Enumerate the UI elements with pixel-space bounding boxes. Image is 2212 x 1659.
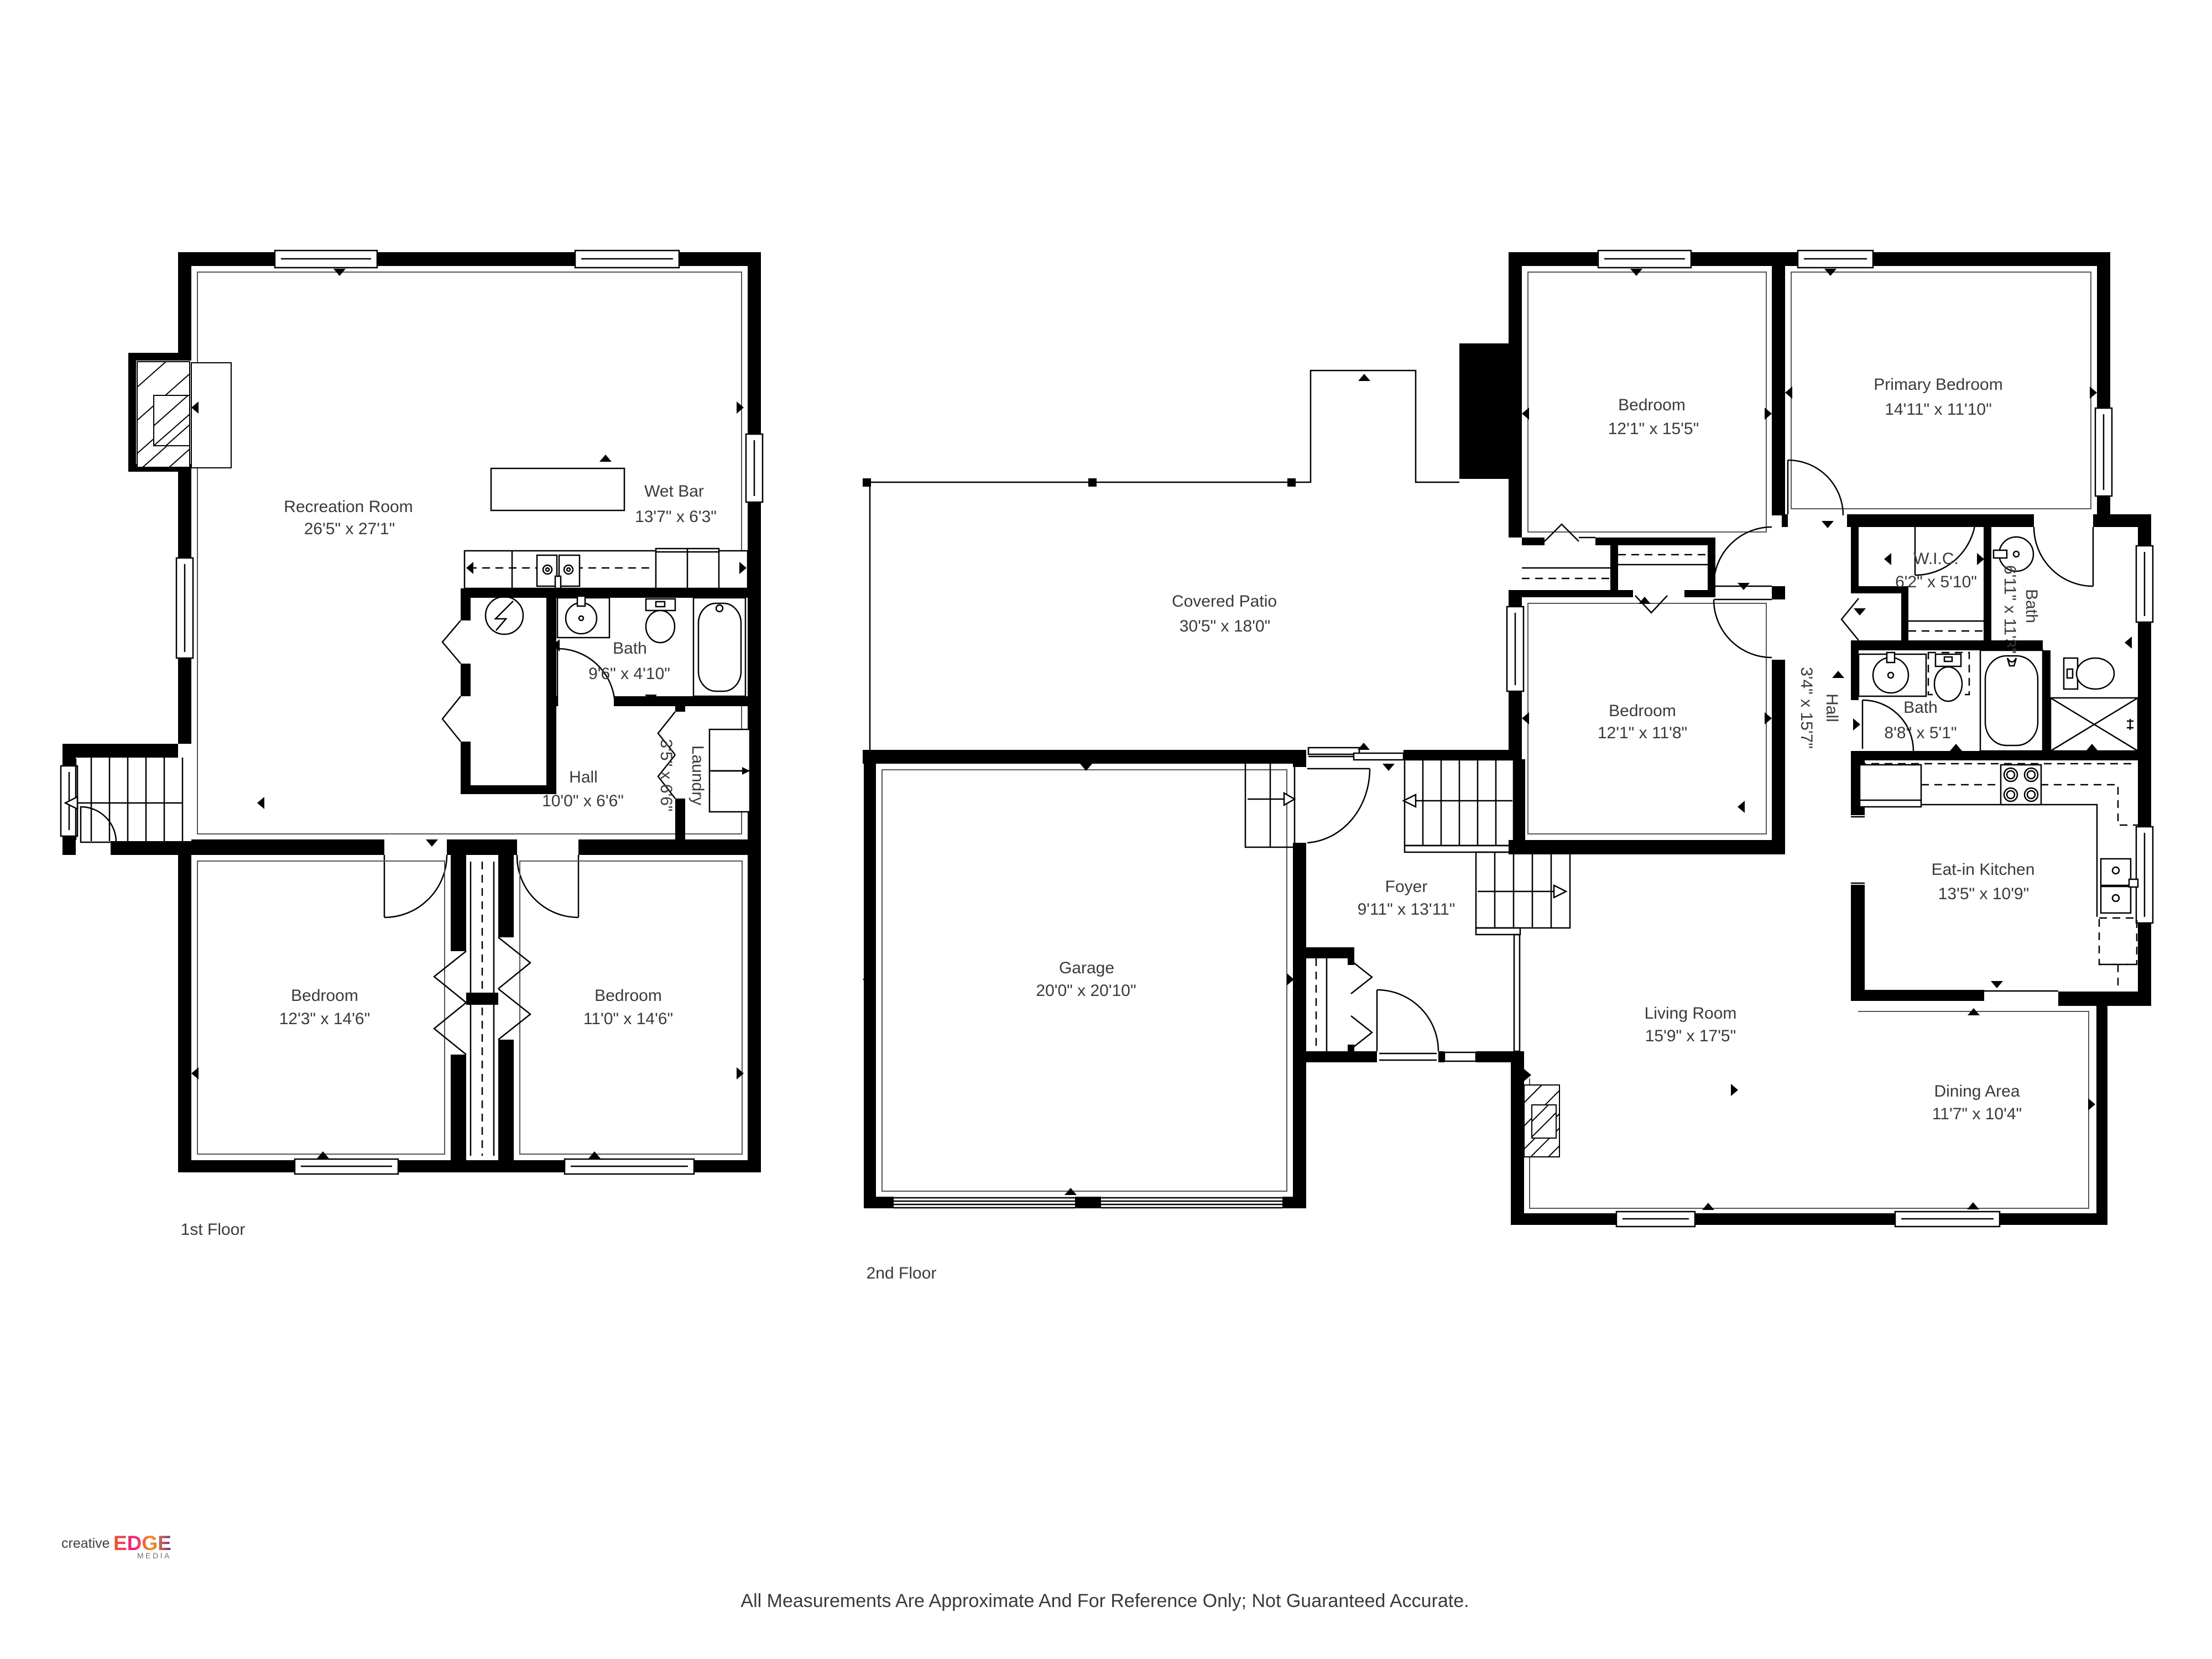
svg-text:Eat-in Kitchen: Eat-in Kitchen (1932, 860, 2035, 879)
svg-text:3'5" x 6'6": 3'5" x 6'6" (657, 739, 675, 811)
svg-text:Garage: Garage (1059, 959, 1114, 977)
svg-text:Covered Patio: Covered Patio (1172, 592, 1277, 611)
svg-text:Primary Bedroom: Primary Bedroom (1874, 375, 2002, 394)
svg-text:Wet Bar: Wet Bar (644, 482, 704, 500)
svg-text:Foyer: Foyer (1385, 878, 1428, 896)
svg-text:20'0" x 20'10": 20'0" x 20'10" (1036, 982, 1136, 1000)
svg-text:9'6" x 4'10": 9'6" x 4'10" (588, 665, 670, 683)
svg-text:All Measurements Are Approxima: All Measurements Are Approximate And For… (740, 1590, 1469, 1611)
svg-text:15'9" x 17'5": 15'9" x 17'5" (1645, 1027, 1736, 1045)
svg-text:13'5" x 10'9": 13'5" x 10'9" (1938, 885, 2030, 903)
svg-text:12'1" x 15'5": 12'1" x 15'5" (1608, 420, 1699, 438)
svg-text:Living Room: Living Room (1645, 1004, 1737, 1022)
svg-text:6'2" x 5'10": 6'2" x 5'10" (1895, 573, 1977, 591)
svg-text:11'0" x 14'6": 11'0" x 14'6" (583, 1010, 673, 1028)
svg-text:30'5" x 18'0": 30'5" x 18'0" (1180, 617, 1271, 635)
svg-text:11'7" x 10'4": 11'7" x 10'4" (1932, 1105, 2022, 1123)
svg-text:14'11" x 11'10": 14'11" x 11'10" (1885, 400, 1991, 419)
svg-text:creative: creative (61, 1536, 110, 1551)
svg-text:Bath: Bath (613, 639, 647, 658)
svg-text:Recreation Room: Recreation Room (284, 498, 413, 516)
svg-text:1st Floor: 1st Floor (181, 1220, 246, 1239)
svg-text:12'3" x 14'6": 12'3" x 14'6" (279, 1010, 371, 1028)
svg-text:Laundry: Laundry (688, 745, 707, 805)
svg-text:Bedroom: Bedroom (291, 987, 358, 1005)
svg-text:8'8" x 5'1": 8'8" x 5'1" (1884, 724, 1957, 742)
svg-text:MEDIA: MEDIA (137, 1551, 171, 1560)
svg-text:10'0" x 6'6": 10'0" x 6'6" (542, 792, 624, 810)
svg-text:Dining Area: Dining Area (1934, 1082, 2020, 1100)
svg-text:Hall: Hall (1823, 693, 1841, 722)
svg-text:Bedroom: Bedroom (594, 987, 662, 1005)
svg-text:Bedroom: Bedroom (1618, 396, 1686, 414)
svg-text:13'7" x 6'3": 13'7" x 6'3" (635, 508, 717, 526)
svg-text:2nd Floor: 2nd Floor (867, 1264, 937, 1282)
svg-text:Bath: Bath (2022, 589, 2041, 623)
svg-text:W.I.C.: W.I.C. (1913, 550, 1959, 568)
svg-text:9'11" x 13'11": 9'11" x 13'11" (1358, 900, 1455, 919)
svg-text:3'4" x 15'7": 3'4" x 15'7" (1797, 667, 1815, 749)
svg-text:Hall: Hall (569, 768, 598, 786)
svg-text:Bath: Bath (1903, 698, 1938, 717)
svg-text:12'1" x 11'8": 12'1" x 11'8" (1598, 724, 1687, 742)
svg-text:Bedroom: Bedroom (1609, 702, 1676, 720)
svg-text:26'5" x 27'1": 26'5" x 27'1" (304, 520, 395, 538)
